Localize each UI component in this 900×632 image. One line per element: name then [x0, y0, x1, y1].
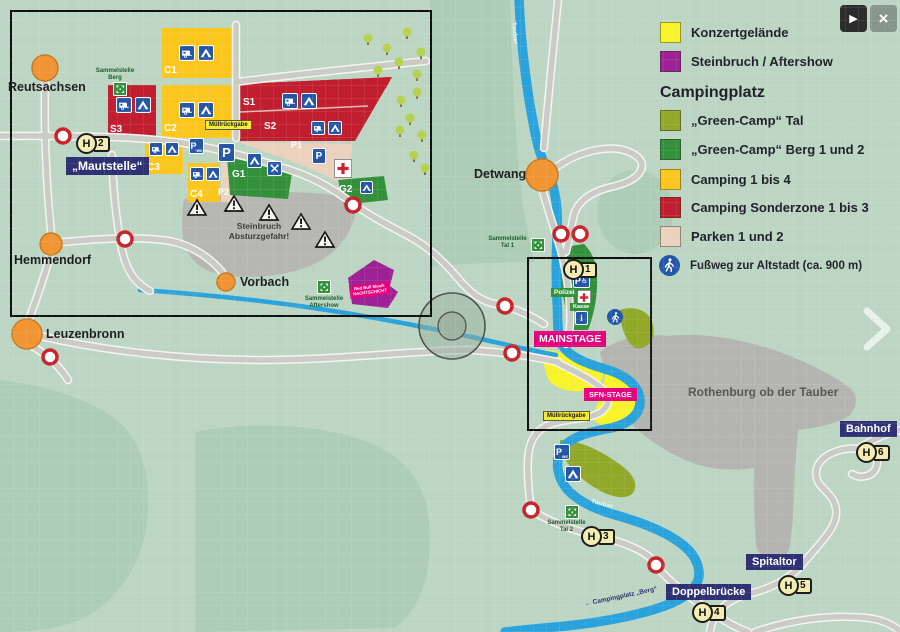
legend-item-sonderzone: Camping Sonderzone 1 bis 3 [660, 197, 869, 218]
town-label-reutsachsen: Reutsachsen [8, 80, 86, 94]
tent-icon [198, 102, 214, 118]
legend-item-aftershow: Steinbruch / Aftershow [660, 51, 833, 72]
legend-swatch-aftershow [660, 51, 681, 72]
tent-icon [135, 97, 151, 113]
bus-stop-sign: H [856, 442, 877, 463]
assembly-label-aftershow: Sammelstelle Aftershow [298, 296, 350, 310]
tent-icon [247, 153, 262, 168]
sign-muellrueckgabe-berg: Müllrückgabe [205, 120, 252, 130]
legend-header-campingplatz: Campingplatz [660, 84, 765, 102]
pedestrian-icon [607, 309, 623, 325]
legend-item-camping: Camping 1 bis 4 [660, 169, 791, 190]
stage-label-mainstage: MAINSTAGE [534, 331, 606, 347]
sign-kasse: Kasse [570, 303, 592, 311]
city-label-rothenburg: Rothenburg ob der Tauber [688, 385, 838, 399]
zone-label-p1: P1 [291, 141, 302, 150]
town-marker-detwang [526, 159, 558, 191]
sign-mautstelle: „Mautstelle“ [66, 157, 149, 175]
info-icon: i [575, 311, 588, 325]
quarry-warning-label: Steinbruch Absturzgefahr! [226, 222, 292, 242]
caravan-icon [179, 102, 195, 118]
zone-label-c1: C1 [164, 66, 177, 76]
legend-swatch-green-berg [660, 139, 681, 160]
pedestrian-icon [659, 255, 680, 276]
zone-label-p2: P2 [218, 188, 229, 197]
legend-swatch-camping [660, 169, 681, 190]
caravan-icon [179, 45, 195, 61]
assembly-label-berg: Sammelstelle Berg [95, 68, 135, 82]
bus-stop-sign: H [76, 133, 97, 154]
tent-icon [565, 466, 581, 482]
legend-item-fussweg: Fußweg zur Altstadt (ca. 900 m) [659, 255, 862, 276]
zone-label-c4: C4 [190, 190, 203, 200]
tent-icon [198, 45, 214, 61]
parking-wc-icon: Pwc [189, 138, 204, 154]
legend-swatch-green-tal [660, 110, 681, 131]
town-marker-leuzenbronn [12, 319, 42, 349]
chevron-right-icon [862, 306, 894, 352]
close-button[interactable]: × [870, 5, 897, 32]
caravan-icon [282, 93, 298, 109]
bus-stop-sign: H [581, 526, 602, 547]
tent-icon [360, 181, 373, 194]
bus-stop-h5: H5 [778, 575, 812, 596]
sign-doppelbruecke: Doppelbrücke [666, 584, 751, 600]
assembly-point-icon [113, 82, 127, 96]
zone-label-c2: C2 [164, 124, 177, 134]
assembly-point-icon [531, 238, 545, 252]
parking-wc-icon: Pwc [554, 444, 570, 460]
zone-label-g1: G1 [232, 170, 245, 180]
caravan-icon [311, 121, 325, 135]
festival-map: Pwc P P P♿ i Pwc C1 C2 C3 C4 S3 S1 S2 P1… [0, 0, 900, 632]
tent-icon [165, 142, 179, 156]
sign-polizei: Polizei [551, 288, 578, 297]
bus-stop-sign: H [692, 602, 713, 623]
assembly-point-icon [317, 280, 331, 294]
parking-icon: P [218, 143, 235, 162]
sign-spitaltor: Spitaltor [746, 554, 803, 570]
legend-item-konzertgelaende: Konzertgelände [660, 22, 789, 43]
play-button[interactable]: ▶ [840, 5, 867, 32]
bus-stop-h6: H6 [856, 442, 890, 463]
tent-icon [301, 93, 317, 109]
bus-stop-h1: H1 [563, 259, 597, 280]
first-aid-icon [334, 159, 352, 178]
assembly-label-tal1: Sammelstelle Tal 1 [486, 236, 529, 250]
zone-label-c3: C3 [147, 163, 160, 173]
legend-swatch-konzert [660, 22, 681, 43]
zone-label-g2: G2 [339, 185, 352, 195]
zone-label-s1: S1 [243, 98, 255, 108]
caravan-icon [149, 142, 163, 156]
carousel-next-button[interactable] [862, 306, 894, 352]
caravan-icon [116, 97, 132, 113]
parking-icon: P [312, 148, 326, 164]
crossed-tools-icon [267, 161, 282, 176]
legend-item-parken: Parken 1 und 2 [660, 226, 783, 247]
sign-muellrueckgabe-tal: Müllrückgabe [543, 411, 590, 421]
legend-item-greencamp-berg: „Green-Camp“ Berg 1 und 2 [660, 139, 864, 160]
caravan-icon [190, 167, 204, 181]
bus-stop-h4: H4 [692, 602, 726, 623]
tent-icon [328, 121, 342, 135]
bus-stop-sign: H [778, 575, 799, 596]
town-label-detwang: Detwang [474, 167, 526, 181]
stage-label-sfn: SFN-STAGE [584, 388, 637, 401]
assembly-point-icon [565, 505, 579, 519]
bus-stop-sign: H [563, 259, 584, 280]
legend-item-greencamp-tal: „Green-Camp“ Tal [660, 110, 803, 131]
bus-stop-h3: H3 [581, 526, 615, 547]
town-label-leuzenbronn: Leuzenbronn [46, 327, 124, 341]
tent-icon [206, 167, 220, 181]
town-label-hemmendorf: Hemmendorf [14, 253, 91, 267]
legend-swatch-sonderzone [660, 197, 681, 218]
bus-stop-h2: H2 [76, 133, 110, 154]
zone-label-s2: S2 [264, 122, 276, 132]
sign-bahnhof: Bahnhof [840, 421, 897, 437]
legend-swatch-parken [660, 226, 681, 247]
zone-label-s3: S3 [110, 125, 122, 135]
town-label-vorbach: Vorbach [240, 275, 289, 289]
